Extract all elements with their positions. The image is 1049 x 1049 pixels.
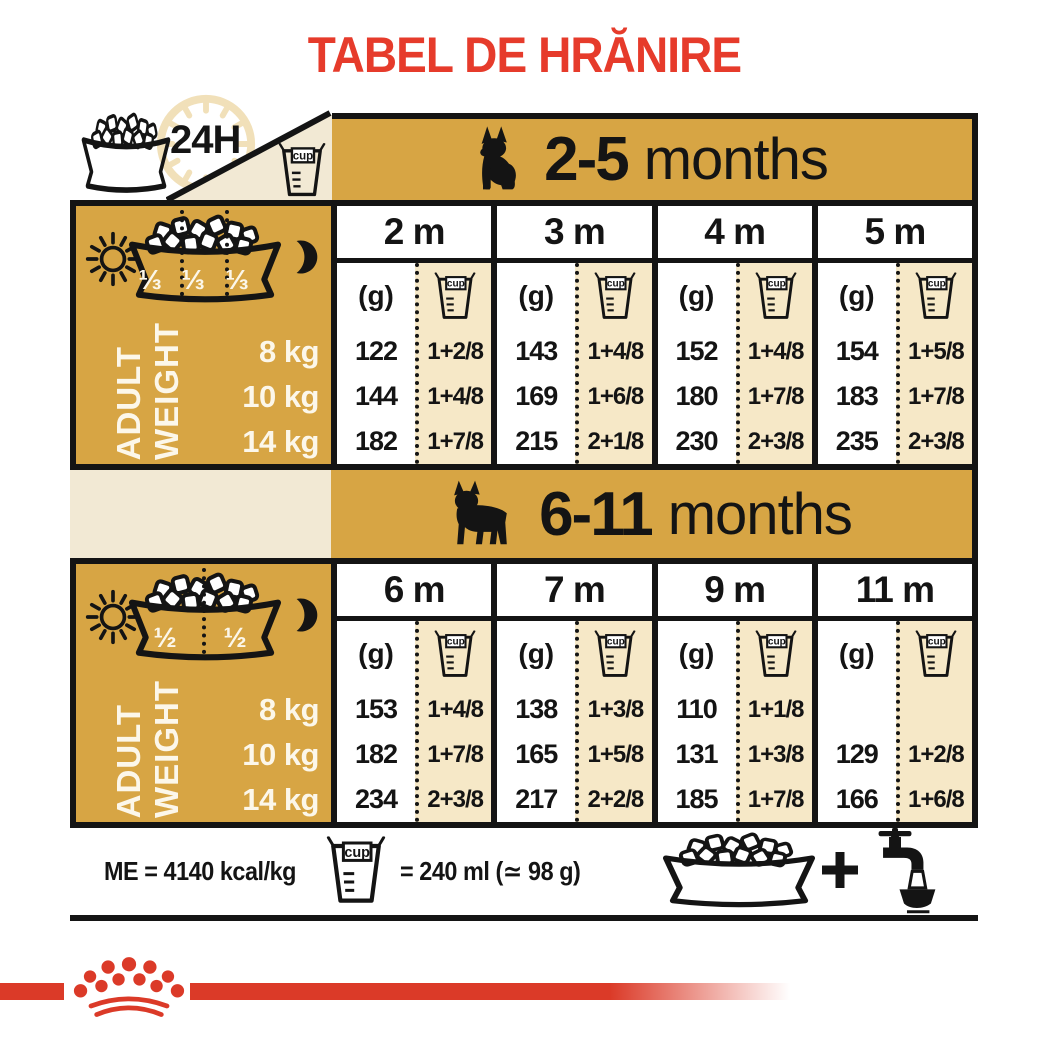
grams-value: 143 bbox=[497, 329, 575, 374]
cups-value bbox=[900, 687, 972, 732]
month-header: 2 m bbox=[337, 206, 491, 263]
month-column-5m: 5 m (g) 154 183 235 1+5/8 1+7/8 2+3/8 bbox=[818, 206, 972, 464]
month-columns: 2 m (g) 122 144 182 1+2/8 1+4/8 1+7/8 bbox=[331, 206, 972, 464]
axis-word-weight: WEIGHT bbox=[148, 680, 186, 818]
grams-value: 182 bbox=[337, 732, 415, 777]
grams-unit-label: (g) bbox=[818, 621, 896, 687]
grams-value: 234 bbox=[337, 777, 415, 822]
cups-value: 1+4/8 bbox=[740, 329, 812, 374]
weight-label: 8 kg bbox=[189, 329, 319, 374]
portion-panel: ⅓ ⅓ ⅓ ADULT WEIGHT 8 kg 10 kg 14 kg bbox=[76, 206, 331, 464]
adult-weight-axis-label: ADULT WEIGHT bbox=[110, 678, 186, 818]
weight-row-labels: 8 kg 10 kg 14 kg bbox=[189, 687, 319, 822]
month-header: 3 m bbox=[497, 206, 651, 263]
empty-cell bbox=[70, 470, 331, 558]
portion-fraction: ½ bbox=[143, 622, 187, 654]
grams-unit-label: (g) bbox=[658, 263, 736, 329]
feeding-table-2-5-months: ⅓ ⅓ ⅓ ADULT WEIGHT 8 kg 10 kg 14 kg 2 m … bbox=[70, 200, 978, 470]
measuring-cup-icon bbox=[434, 629, 476, 679]
cup-equivalence-text: = 240 ml (≃ 98 g) bbox=[400, 856, 580, 887]
grams-value: 182 bbox=[337, 419, 415, 464]
cups-value: 1+4/8 bbox=[419, 374, 491, 419]
page-title: TABEL DE HRĂNIRE bbox=[42, 26, 1007, 84]
month-column-7m: 7 m (g) 138 165 217 1+3/8 1+5/8 2+2/8 bbox=[497, 564, 657, 822]
portion-divider-line bbox=[202, 568, 206, 654]
grams-value bbox=[818, 687, 896, 732]
weight-label: 10 kg bbox=[189, 732, 319, 777]
cups-value: 1+7/8 bbox=[740, 777, 812, 822]
metabolizable-energy-text: ME = 4140 kcal/kg bbox=[104, 856, 296, 887]
grams-value: 138 bbox=[497, 687, 575, 732]
grams-value: 217 bbox=[497, 777, 575, 822]
brand-band-left bbox=[0, 983, 64, 1000]
grams-value: 129 bbox=[818, 732, 896, 777]
grams-value: 131 bbox=[658, 732, 736, 777]
water-tap-icon bbox=[862, 828, 940, 914]
portion-fraction: ⅓ bbox=[171, 264, 215, 296]
cups-value: 1+5/8 bbox=[900, 329, 972, 374]
cups-value: 1+3/8 bbox=[740, 732, 812, 777]
month-header: 5 m bbox=[818, 206, 972, 263]
footer-info-row: ME = 4140 kcal/kg = 240 ml (≃ 98 g) bbox=[70, 828, 978, 921]
cups-value: 1+2/8 bbox=[900, 732, 972, 777]
grams-value: 154 bbox=[818, 329, 896, 374]
cups-value: 1+3/8 bbox=[579, 687, 651, 732]
feeding-table-6-11-months: ½ ½ ADULT WEIGHT 8 kg 10 kg 14 kg 6 m (g… bbox=[70, 558, 978, 828]
cups-value: 1+2/8 bbox=[419, 329, 491, 374]
grams-value: 185 bbox=[658, 777, 736, 822]
grams-value: 180 bbox=[658, 374, 736, 419]
measuring-cup-icon bbox=[594, 271, 636, 321]
age-banner-2-5-months: 2-5 months bbox=[332, 113, 978, 200]
adult-weight-axis-label: ADULT WEIGHT bbox=[110, 320, 186, 460]
measuring-cup-icon bbox=[915, 271, 957, 321]
brand-band-right bbox=[190, 983, 790, 1000]
measuring-cup-icon bbox=[755, 271, 797, 321]
grams-unit-label: (g) bbox=[337, 263, 415, 329]
grams-value: 215 bbox=[497, 419, 575, 464]
cups-value: 1+4/8 bbox=[579, 329, 651, 374]
month-header: 11 m bbox=[818, 564, 972, 621]
portion-panel: ½ ½ ADULT WEIGHT 8 kg 10 kg 14 kg bbox=[76, 564, 331, 822]
banner-age-unit: months bbox=[668, 481, 852, 548]
grams-value: 235 bbox=[818, 419, 896, 464]
moon-icon bbox=[287, 582, 319, 648]
month-columns: 6 m (g) 153 182 234 1+4/8 1+7/8 2+3/8 bbox=[331, 564, 972, 822]
grams-value: 153 bbox=[337, 687, 415, 732]
weight-label: 10 kg bbox=[189, 374, 319, 419]
portion-fraction: ⅓ bbox=[128, 264, 172, 296]
grams-value: 183 bbox=[818, 374, 896, 419]
grams-value: 165 bbox=[497, 732, 575, 777]
measuring-cup-icon bbox=[915, 629, 957, 679]
food-bowl-icon bbox=[660, 832, 818, 912]
month-header: 9 m bbox=[658, 564, 812, 621]
axis-word-weight: WEIGHT bbox=[148, 322, 186, 460]
grams-value: 122 bbox=[337, 329, 415, 374]
month-header: 7 m bbox=[497, 564, 651, 621]
cups-value: 1+7/8 bbox=[900, 374, 972, 419]
french-bulldog-sitting-icon bbox=[476, 124, 518, 196]
weight-row-labels: 8 kg 10 kg 14 kg bbox=[189, 329, 319, 464]
weight-label: 8 kg bbox=[189, 687, 319, 732]
measuring-cup-icon bbox=[278, 142, 326, 198]
portion-fraction: ½ bbox=[213, 622, 257, 654]
month-header: 6 m bbox=[337, 564, 491, 621]
month-column-9m: 9 m (g) 110 131 185 1+1/8 1+3/8 1+7/8 bbox=[658, 564, 818, 822]
measuring-cup-icon bbox=[755, 629, 797, 679]
month-column-6m: 6 m (g) 153 182 234 1+4/8 1+7/8 2+3/8 bbox=[337, 564, 497, 822]
grams-unit-label: (g) bbox=[497, 263, 575, 329]
cups-value: 2+1/8 bbox=[579, 419, 651, 464]
measuring-cup-icon bbox=[594, 629, 636, 679]
cups-value: 1+1/8 bbox=[740, 687, 812, 732]
moon-icon bbox=[287, 224, 319, 290]
cups-value: 2+3/8 bbox=[740, 419, 812, 464]
grams-unit-label: (g) bbox=[337, 621, 415, 687]
measuring-cup-icon bbox=[434, 271, 476, 321]
french-bulldog-standing-icon bbox=[451, 479, 513, 549]
weight-label: 14 kg bbox=[189, 419, 319, 464]
banner-age-range: 2-5 bbox=[544, 124, 628, 195]
cups-value: 1+7/8 bbox=[419, 419, 491, 464]
measuring-cup-icon bbox=[326, 836, 386, 904]
axis-word-adult: ADULT bbox=[110, 704, 148, 818]
age-banner-6-11-months: 6-11 months bbox=[331, 470, 978, 558]
grams-value: 144 bbox=[337, 374, 415, 419]
month-column-11m: 11 m (g) 129 166 1+2/8 1+6/8 bbox=[818, 564, 972, 822]
grams-value: 169 bbox=[497, 374, 575, 419]
cups-value: 2+3/8 bbox=[900, 419, 972, 464]
food-bowl-icon bbox=[80, 112, 172, 198]
cups-value: 1+7/8 bbox=[740, 374, 812, 419]
month-column-2m: 2 m (g) 122 144 182 1+2/8 1+4/8 1+7/8 bbox=[337, 206, 497, 464]
grams-unit-label: (g) bbox=[658, 621, 736, 687]
banner-age-unit: months bbox=[644, 126, 828, 193]
age-banner-6-11-row: 6-11 months bbox=[70, 470, 978, 558]
portion-fraction: ⅓ bbox=[215, 264, 259, 296]
grams-unit-label: (g) bbox=[497, 621, 575, 687]
month-header: 4 m bbox=[658, 206, 812, 263]
cups-value: 1+6/8 bbox=[579, 374, 651, 419]
cups-value: 1+4/8 bbox=[419, 687, 491, 732]
grams-unit-label: (g) bbox=[818, 263, 896, 329]
grams-value: 110 bbox=[658, 687, 736, 732]
cups-value: 2+3/8 bbox=[419, 777, 491, 822]
feeding-table-infographic: TABEL DE HRĂNIRE 24H 2-5 months ⅓ ⅓ ⅓ AD… bbox=[0, 0, 1049, 1049]
grams-value: 166 bbox=[818, 777, 896, 822]
month-column-4m: 4 m (g) 152 180 230 1+4/8 1+7/8 2+3/8 bbox=[658, 206, 818, 464]
grams-value: 152 bbox=[658, 329, 736, 374]
cups-value: 1+6/8 bbox=[900, 777, 972, 822]
royal-canin-crown-logo bbox=[72, 956, 186, 1018]
cups-value: 2+2/8 bbox=[579, 777, 651, 822]
grams-value: 230 bbox=[658, 419, 736, 464]
axis-word-adult: ADULT bbox=[110, 346, 148, 460]
weight-label: 14 kg bbox=[189, 777, 319, 822]
month-column-3m: 3 m (g) 143 169 215 1+4/8 1+6/8 2+1/8 bbox=[497, 206, 657, 464]
plus-icon bbox=[822, 852, 858, 888]
cups-value: 1+5/8 bbox=[579, 732, 651, 777]
banner-age-range: 6-11 bbox=[539, 479, 652, 550]
cups-value: 1+7/8 bbox=[419, 732, 491, 777]
